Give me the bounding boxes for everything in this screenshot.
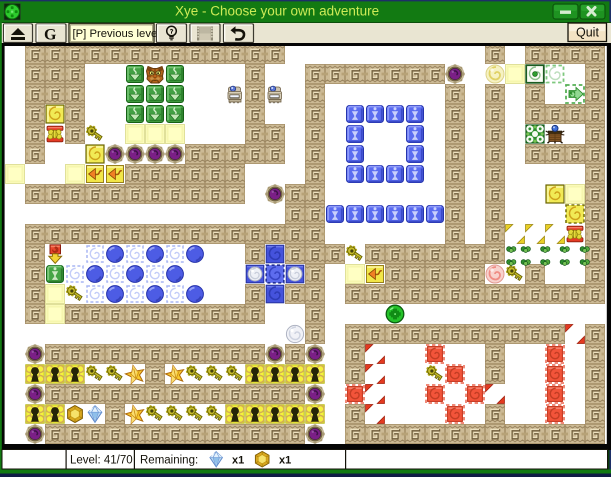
svg-text:x1: x1: [279, 455, 291, 467]
svg-text:Xye - Choose your own adventur: Xye - Choose your own adventure: [175, 4, 379, 19]
svg-text:[P] Previous level: [P] Previous level: [73, 28, 160, 40]
svg-text:Level: 41/70: Level: 41/70: [70, 455, 133, 467]
svg-text:Quit: Quit: [576, 26, 599, 40]
svg-text:G: G: [44, 27, 57, 44]
svg-text:x1: x1: [232, 455, 244, 467]
svg-text:Remaining:: Remaining:: [140, 455, 198, 467]
